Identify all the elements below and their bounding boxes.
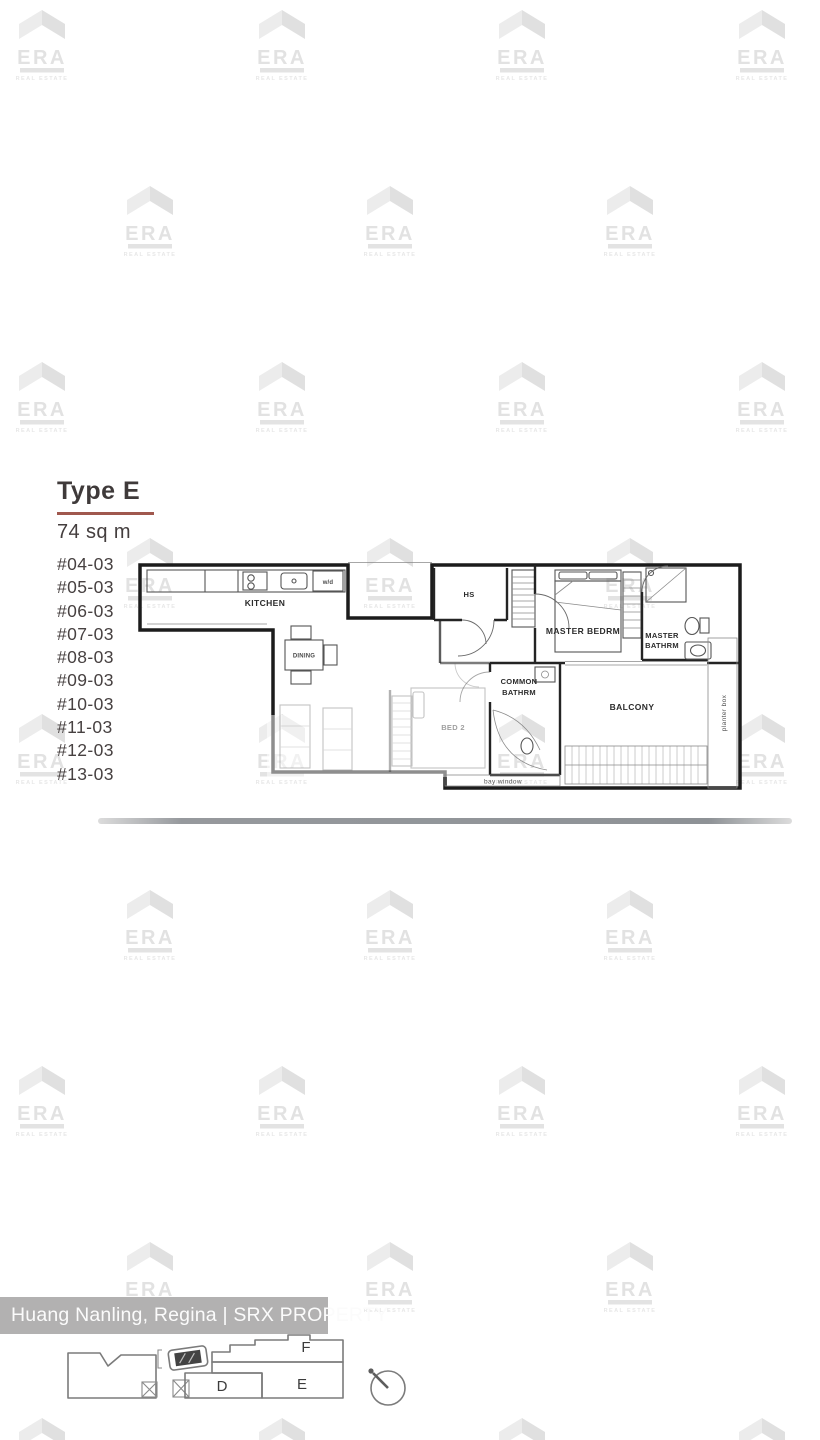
- balcony: [565, 746, 707, 784]
- site-plan: D E F: [50, 1330, 410, 1438]
- attribution-bar: Huang Nanling, Regina | SRX PROPERTY: [0, 1297, 328, 1334]
- label-washer-dryer: w/d: [322, 580, 334, 586]
- lift-core-icon: [173, 1380, 189, 1397]
- label-master-bedroom: MASTER BEDRM: [546, 626, 620, 636]
- floor-plan-page: ERA REAL ESTATE ERA REAL ESTATE ERA REAL…: [0, 0, 820, 1440]
- block-label-f: F: [301, 1339, 310, 1356]
- label-balcony: BALCONY: [610, 702, 655, 712]
- label-bay-window: bay window: [484, 779, 522, 786]
- plan-shadow-line: [98, 818, 792, 824]
- compass-icon: [368, 1368, 405, 1405]
- label-master-bathroom-2: BATHRM: [645, 641, 679, 650]
- unit-area: 74 sq m: [57, 521, 131, 544]
- hall-wardrobe: [512, 570, 535, 627]
- type-underline: [57, 512, 154, 515]
- kitchen-fixtures: [147, 570, 345, 624]
- lift-core-icon: [142, 1382, 157, 1397]
- label-common-bathroom-1: COMMON: [501, 677, 538, 686]
- site-block-left: [68, 1353, 156, 1398]
- master-bedroom: [535, 565, 641, 663]
- label-planter-box: planter box: [721, 694, 728, 731]
- label-dining: DINING: [293, 654, 315, 660]
- label-kitchen: KITCHEN: [245, 598, 286, 608]
- label-hs: HS: [463, 590, 474, 599]
- block-label-e: E: [297, 1376, 307, 1393]
- unit-type-title: Type E: [57, 477, 140, 506]
- unit-location-marker: [168, 1345, 208, 1370]
- label-common-bathroom-2: BATHRM: [502, 688, 536, 697]
- floor-plan: w/d KITCHEN DINING HS: [95, 550, 795, 815]
- attribution-text: Huang Nanling, Regina | SRX PROPERTY: [0, 1297, 328, 1334]
- label-bedroom2: BED 2: [441, 723, 465, 732]
- block-label-d: D: [217, 1378, 228, 1395]
- label-master-bathroom-1: MASTER: [645, 631, 679, 640]
- household-shelter: [434, 568, 507, 656]
- site-block-f: [212, 1335, 343, 1362]
- content-layer: Type E 74 sq m #04-03#05-03#06-03#07-03#…: [0, 0, 820, 1440]
- site-block-e: [212, 1362, 343, 1398]
